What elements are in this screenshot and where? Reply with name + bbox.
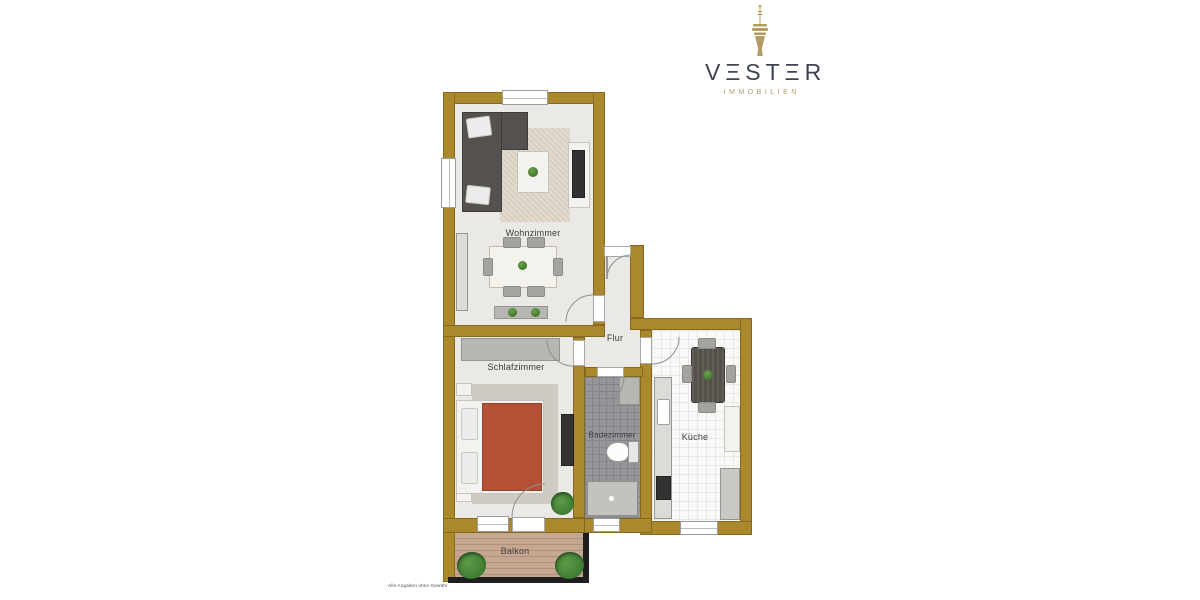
tv xyxy=(572,150,585,198)
window xyxy=(477,516,509,532)
kitchen-counter xyxy=(724,406,740,452)
kitchen-chair xyxy=(682,365,692,383)
window xyxy=(680,521,718,535)
tv xyxy=(561,414,574,466)
balcony-railing xyxy=(583,533,589,581)
toilet-tank xyxy=(628,441,639,463)
dining-chair xyxy=(503,286,521,297)
floorplan-page: VΞSTΞR IMMOBILIEN xyxy=(0,0,1200,600)
dining-chair xyxy=(553,258,563,276)
entrance-door xyxy=(604,246,631,257)
dining-chair xyxy=(527,237,545,248)
door-balkon xyxy=(512,517,545,532)
floor-plan: Wohnzimmer Schlafzimmer Flur Badezimmer … xyxy=(0,0,1200,600)
wall-segment xyxy=(593,92,605,325)
bed-blanket xyxy=(482,403,542,491)
room-label-schlafzimmer: Schlafzimmer xyxy=(488,362,545,372)
plant xyxy=(508,308,517,317)
window xyxy=(593,518,620,532)
room-label-flur: Flur xyxy=(607,333,623,343)
bed-pillow xyxy=(461,452,478,484)
room-label-wohnzimmer: Wohnzimmer xyxy=(506,228,561,238)
window xyxy=(441,158,456,208)
kitchen-chair xyxy=(726,365,736,383)
fridge xyxy=(720,468,740,520)
window xyxy=(502,90,548,105)
room-label-badezimmer: Badezimmer xyxy=(589,431,636,440)
bathroom-sink xyxy=(619,377,640,405)
wall-shelf xyxy=(456,233,468,311)
dining-chair xyxy=(527,286,545,297)
wall-segment xyxy=(630,318,752,330)
toilet xyxy=(606,442,629,462)
kitchen-sink xyxy=(657,399,670,425)
disclaimer-text: Alle Angaben ohne Gewähr xyxy=(388,583,448,588)
door-kueche xyxy=(640,337,652,364)
bed-pillow xyxy=(461,408,478,440)
kitchen-chair xyxy=(698,402,716,413)
plant xyxy=(703,370,713,380)
door-badezimmer xyxy=(597,367,624,377)
nightstand xyxy=(456,383,472,396)
kitchen-chair xyxy=(698,338,716,349)
wardrobe xyxy=(461,338,560,361)
plant xyxy=(518,261,527,270)
stove xyxy=(656,476,671,500)
dining-chair xyxy=(503,237,521,248)
dining-chair xyxy=(483,258,493,276)
room-label-balkon: Balkon xyxy=(501,546,530,556)
wall-segment xyxy=(740,318,752,535)
room-label-kueche: Küche xyxy=(682,432,709,442)
shower-drain xyxy=(609,496,614,501)
door-schlafzimmer xyxy=(573,340,585,366)
plant xyxy=(528,167,538,177)
plant xyxy=(531,308,540,317)
wall-segment xyxy=(630,245,644,318)
wall-segment xyxy=(443,325,605,337)
sofa-pillow xyxy=(465,185,491,205)
sofa-pillow xyxy=(466,115,493,138)
door-wohnzimmer xyxy=(593,295,605,322)
flur-floor xyxy=(605,257,630,337)
